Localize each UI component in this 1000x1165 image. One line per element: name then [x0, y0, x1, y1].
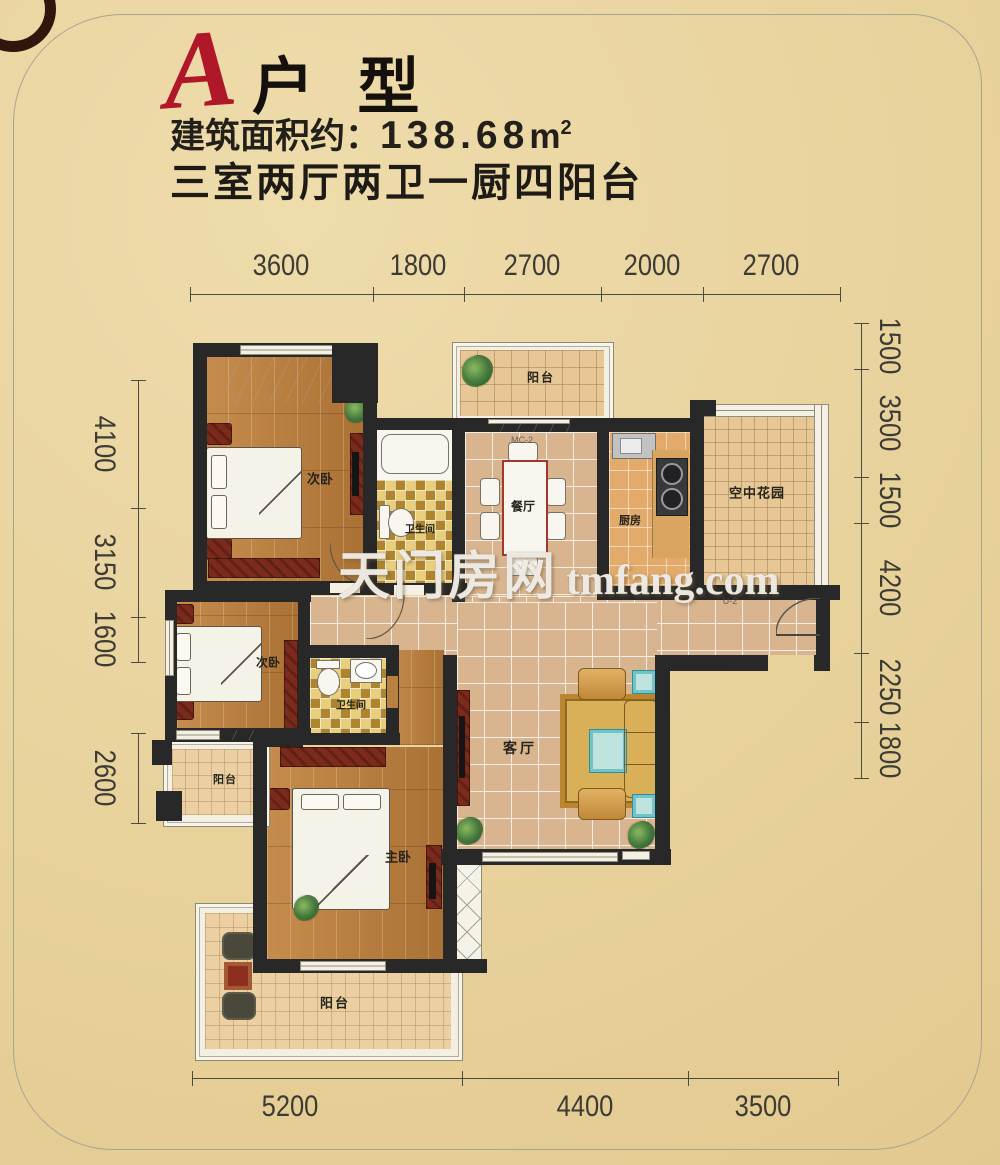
room-label-sky-garden: 空中花园 [729, 483, 785, 502]
wall [156, 791, 182, 821]
tick [854, 778, 869, 779]
dim-left-1: 4100 [89, 393, 119, 495]
window [300, 961, 386, 971]
tick [854, 523, 869, 524]
dim-left-3: 1600 [89, 588, 119, 690]
pillow [211, 495, 227, 529]
watermark-en: tmfang.com [566, 557, 779, 605]
watermark-cn: 天门房网 [338, 534, 558, 609]
tv-icon [429, 863, 436, 899]
bed-fold [259, 448, 301, 538]
master-nightstand [268, 788, 290, 810]
bedroom-top-dresser [208, 558, 320, 578]
pillow [176, 633, 191, 661]
bedroom-top-baywindow-marble [226, 355, 342, 403]
wall [443, 959, 487, 973]
dim-top-5: 2700 [720, 249, 822, 283]
door-code-dining-window: MC-2 [511, 435, 533, 445]
window [176, 730, 220, 740]
entry-door-opening [768, 655, 814, 671]
dim-right-4: 4200 [874, 537, 904, 639]
wall [298, 645, 392, 658]
plant-icon [462, 356, 492, 386]
dim-top-3: 2700 [481, 249, 583, 283]
tick [838, 1071, 839, 1086]
dim-bottom-1: 5200 [239, 1090, 341, 1124]
tick [462, 1071, 463, 1086]
balcony-chair [222, 992, 256, 1020]
balcony-table [224, 962, 252, 990]
tv-icon [459, 716, 465, 778]
plant-icon [628, 822, 654, 848]
wall [332, 343, 378, 403]
pillow [301, 794, 339, 810]
layout-description: 三室两厅两卫一厨四阳台 [170, 150, 643, 208]
window [622, 851, 650, 860]
tick [192, 1071, 193, 1086]
tick [840, 287, 841, 302]
room-label-balcony-top: 阳台 [527, 369, 555, 386]
wall [690, 400, 716, 416]
plant-icon [456, 818, 482, 844]
tick [373, 287, 374, 302]
window [240, 345, 336, 355]
tick [131, 662, 146, 663]
bedroom-top-bed [206, 447, 302, 539]
tick [854, 477, 869, 478]
room-label-living: 客厅 [503, 738, 537, 758]
dim-top-4: 2000 [601, 249, 703, 283]
wall [443, 865, 457, 973]
balcony-chair [222, 932, 256, 960]
entry-door-arc [776, 598, 820, 636]
sink-basin [355, 662, 377, 679]
door-opening [387, 676, 398, 708]
dim-bottom-2: 4400 [534, 1090, 636, 1124]
tick [854, 323, 869, 324]
armchair [578, 788, 626, 820]
window-sill-marble [488, 424, 570, 432]
kitchen-sink-basin [620, 438, 642, 454]
tick [464, 287, 465, 302]
dimension-line-right [861, 323, 862, 778]
dim-top-1: 3600 [230, 249, 332, 283]
dim-left-4: 2600 [89, 727, 119, 829]
bedroom-mid-bed [172, 626, 262, 702]
entry-door-leaf [776, 634, 820, 636]
wall [655, 655, 670, 865]
watermark: 天门房网 tmfang.com [338, 534, 779, 609]
pillow [211, 455, 227, 489]
wall [298, 590, 310, 742]
window [482, 852, 618, 862]
dimension-line-bottom [192, 1078, 838, 1079]
tick [703, 287, 704, 302]
tick [131, 733, 146, 734]
dimension-line-top [190, 294, 840, 295]
sofa [624, 700, 658, 798]
wall [253, 733, 267, 973]
wall [253, 733, 303, 747]
sky-garden-window-right [814, 404, 829, 586]
tick [190, 287, 191, 302]
wall [443, 655, 457, 865]
master-wardrobe [280, 747, 386, 767]
tick [688, 1071, 689, 1086]
window [165, 620, 174, 676]
room-label-dining: 餐厅 [511, 498, 535, 515]
pillow [176, 667, 191, 695]
dining-chair [480, 478, 500, 506]
wall [298, 733, 400, 745]
room-label-balcony-left: 阳台 [213, 771, 237, 787]
dimension-line-left-lower [138, 733, 139, 823]
dimension-line-left-upper [138, 380, 139, 662]
master-bed [292, 788, 390, 910]
nightstand [206, 538, 232, 560]
coffee-table [589, 729, 627, 773]
burner-icon [661, 488, 683, 510]
dining-chair [508, 442, 538, 462]
tick [601, 287, 602, 302]
pillow [343, 794, 381, 810]
nightstand [206, 423, 232, 445]
wall [165, 590, 311, 602]
room-label-bathroom-mid: 卫生间 [336, 697, 366, 712]
dim-right-6: 1800 [874, 699, 904, 801]
toilet-icon [317, 668, 340, 696]
tick [131, 508, 146, 509]
plant-icon [294, 896, 318, 920]
room-label-kitchen: 厨房 [619, 512, 641, 528]
room-label-master-bedroom: 主卧 [385, 847, 411, 866]
dim-right-3: 1500 [874, 449, 904, 551]
wall [441, 849, 457, 865]
side-table [632, 670, 656, 694]
bathtub [381, 434, 449, 474]
room-label-bedroom-mid: 次卧 [256, 654, 280, 671]
tv-icon [352, 452, 359, 496]
tick [131, 823, 146, 824]
room-label-balcony-bottom: 阳台 [320, 993, 350, 1012]
dining-chair [546, 478, 566, 506]
tick [131, 380, 146, 381]
area-superscript: 2 [560, 117, 571, 139]
tick [131, 617, 146, 618]
sky-garden-window-top [704, 404, 816, 417]
tick [854, 369, 869, 370]
dim-bottom-3: 3500 [712, 1090, 814, 1124]
dim-top-2: 1800 [367, 249, 469, 283]
bedroom-mid-wardrobe [284, 640, 298, 730]
side-table [632, 794, 656, 818]
wall [193, 343, 207, 595]
room-label-bedroom-top: 次卧 [307, 469, 333, 488]
armchair [578, 668, 626, 700]
wall [152, 740, 172, 765]
tick [854, 653, 869, 654]
wall [597, 418, 702, 432]
burner-icon [661, 463, 683, 485]
tick [854, 722, 869, 723]
floorplan-page: A 户 型 建筑面积约：138.68m2 三室两厅两卫一厨四阳台 [0, 0, 1000, 1165]
